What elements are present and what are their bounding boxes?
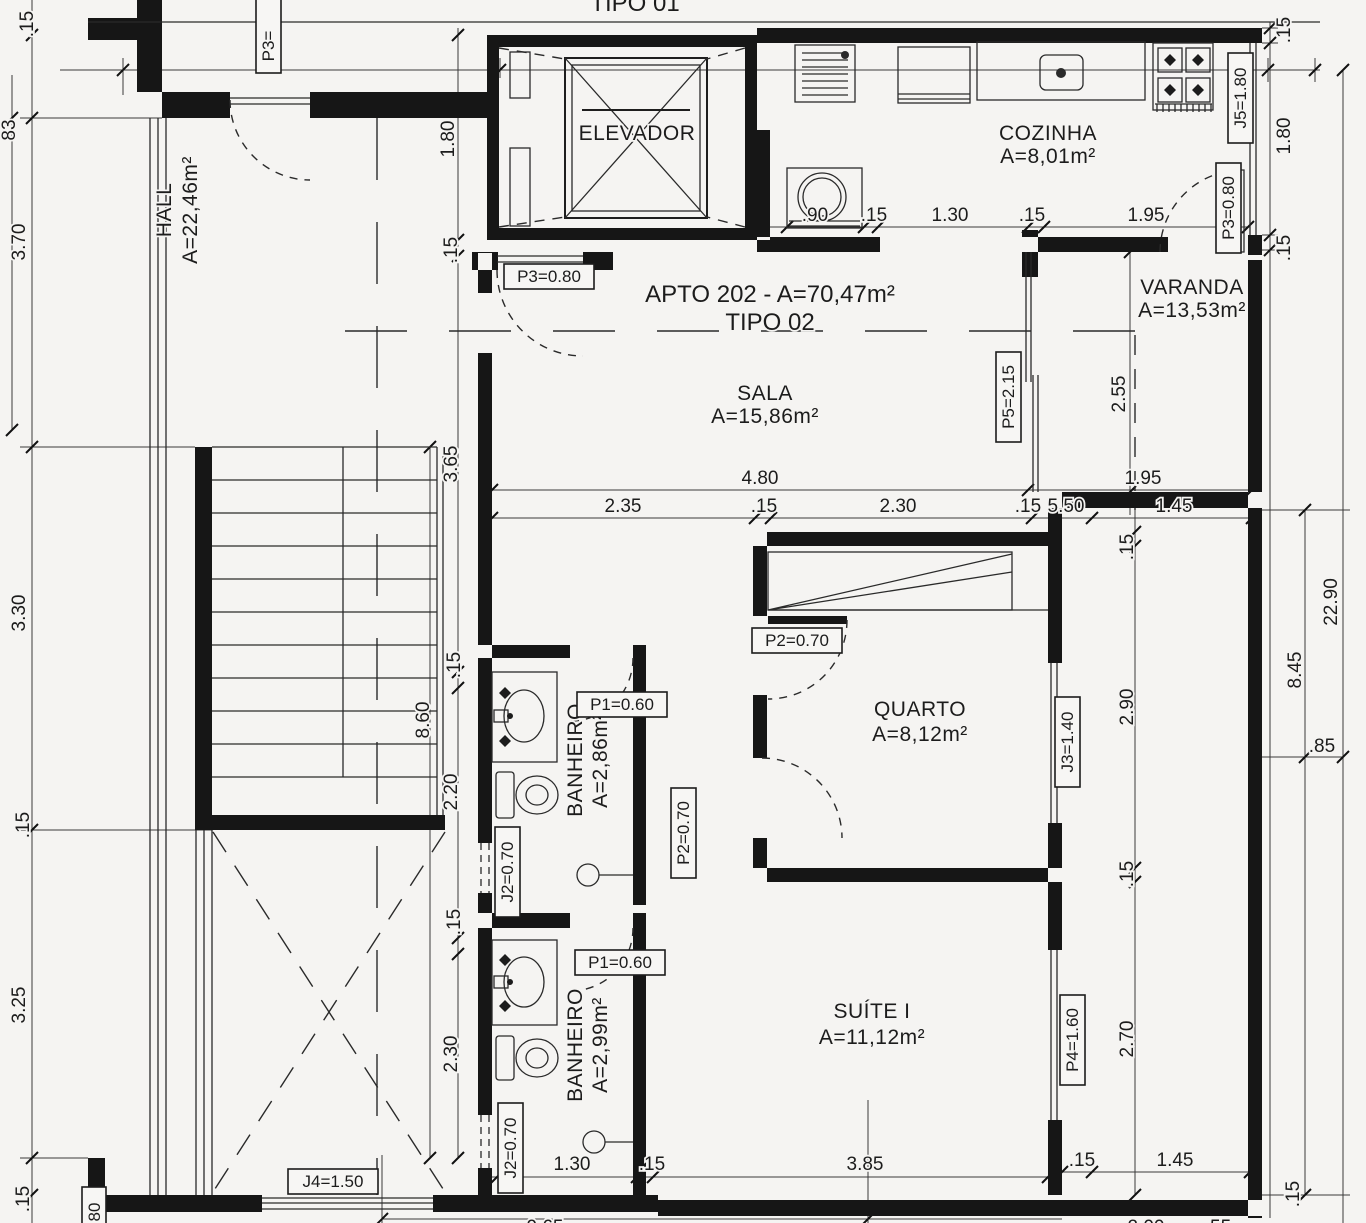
dim-sala-195: 1.95 bbox=[1125, 468, 1162, 489]
window-j4 bbox=[262, 1198, 433, 1209]
b2-toilet-bowl-inner bbox=[526, 1048, 548, 1068]
tag-j2-banheiro2: J2=0.70 bbox=[498, 1103, 523, 1193]
dim-bot-385: 3.85 bbox=[847, 1154, 884, 1175]
stove-burner-flames bbox=[1164, 54, 1204, 96]
floor-plan-canvas: ELEVADOR COZINHA A=8,01m² HALL A=22,46m²… bbox=[0, 0, 1366, 1223]
dim-q-290: 2.90 bbox=[1117, 689, 1138, 726]
dim-bot-55-cut: .55 bbox=[1205, 1217, 1231, 1223]
dim-bot-15b: .15 bbox=[1069, 1150, 1095, 1171]
dim-left-325: 3.25 bbox=[9, 987, 30, 1024]
tag-j3-quarto: J3=1.40 bbox=[1055, 697, 1080, 787]
dim-kit-195: 1.95 bbox=[1128, 205, 1165, 226]
dim-mid-15b: .15 bbox=[444, 909, 465, 935]
dim-elev-180: 1.80 bbox=[438, 121, 459, 158]
dim-left-83: 83 bbox=[0, 119, 20, 140]
svg-text:P2=0.70: P2=0.70 bbox=[674, 801, 693, 865]
dim-r-85: .85 bbox=[1309, 736, 1335, 757]
stair-treads bbox=[212, 447, 437, 777]
dim-bot-15a: .15 bbox=[639, 1154, 665, 1175]
quarto-wardrobe-diagonals bbox=[768, 554, 1048, 610]
tag-p2-quarto: P2=0.70 bbox=[752, 628, 842, 653]
dim-bot-145: 1.45 bbox=[1157, 1150, 1194, 1171]
tag-p5-varanda: P5=2.15 bbox=[996, 352, 1021, 442]
hall-glass-wall bbox=[150, 118, 166, 1195]
svg-text:P3=: P3= bbox=[259, 31, 278, 62]
stairs-group bbox=[212, 447, 443, 815]
laundry-tank-drain bbox=[841, 51, 849, 59]
dim-sala-15b: .15 bbox=[1015, 496, 1041, 517]
dim-sala-480: 4.80 bbox=[742, 468, 779, 489]
dim-bot-200-cut: 2.00 bbox=[1128, 1217, 1165, 1223]
dim-kit-130: 1.30 bbox=[932, 205, 969, 226]
dim-elev-15: .15 bbox=[441, 237, 462, 263]
dim-left-15-bot: .15 bbox=[13, 1186, 34, 1212]
room-label-elevador: ELEVADOR bbox=[579, 122, 696, 145]
room-label-quarto: QUARTO bbox=[874, 698, 966, 721]
dim-r-2290: 22.90 bbox=[1321, 578, 1342, 626]
kitchen-cabinet-detail bbox=[898, 94, 970, 99]
svg-text:P3=0.80: P3=0.80 bbox=[1219, 176, 1238, 240]
dim-q-270: 2.70 bbox=[1117, 1021, 1138, 1058]
elevator-door-pocket-bottom bbox=[510, 148, 530, 226]
tag-j2-banheiro1: J2=0.70 bbox=[495, 827, 520, 917]
window-j2-banheiro1 bbox=[481, 843, 489, 893]
room-area-suite: A=11,12m² bbox=[819, 1026, 925, 1049]
door-p4-glazing bbox=[1051, 950, 1057, 1120]
tag-p3-entry-cut: P3= bbox=[256, 0, 281, 73]
void-left-wall bbox=[196, 830, 212, 1195]
dim-mid-860: 8.60 bbox=[413, 702, 434, 739]
dim-sala-230: 2.30 bbox=[880, 496, 917, 517]
tag-p4-suite: P4=1.60 bbox=[1060, 995, 1085, 1085]
room-label-sala: SALA bbox=[737, 382, 793, 405]
room-area-sala: A=15,86m² bbox=[711, 405, 819, 428]
tag-j5-cozinha: J5=1.80 bbox=[1228, 53, 1253, 143]
dim-sala-235: 2.35 bbox=[605, 496, 642, 517]
dim-sala-15a: .15 bbox=[751, 496, 777, 517]
dim-left-15-mid: .15 bbox=[13, 812, 34, 838]
room-label-cozinha: COZINHA bbox=[999, 122, 1097, 145]
room-area-quarto: A=8,12m² bbox=[872, 723, 968, 746]
stair-rail bbox=[437, 447, 443, 815]
entry-door-sill bbox=[230, 98, 310, 104]
dim-sala-550: 5.50 bbox=[1048, 496, 1085, 517]
top-cut-text: TIPO 01 bbox=[590, 0, 679, 17]
door-arc-p2-corridor bbox=[762, 758, 842, 838]
tag-j4-bottom: J4=1.50 bbox=[288, 1169, 378, 1194]
kitchen-sink-drain bbox=[1056, 68, 1066, 78]
svg-text:80: 80 bbox=[85, 1203, 104, 1222]
b1-faucet-dot bbox=[507, 713, 513, 719]
room-area-cozinha: A=8,01m² bbox=[1000, 145, 1096, 168]
svg-text:J2=0.70: J2=0.70 bbox=[498, 842, 517, 903]
svg-text:P2=0.70: P2=0.70 bbox=[765, 631, 829, 650]
b2-toilet-bowl bbox=[516, 1039, 558, 1077]
room-area-varanda: A=13,53m² bbox=[1138, 299, 1246, 322]
sliding-door-p5 bbox=[1026, 252, 1038, 492]
dim-r-15a: .15 bbox=[1274, 17, 1295, 43]
b1-toilet-bowl-inner bbox=[526, 785, 548, 805]
svg-text:J2=0.70: J2=0.70 bbox=[501, 1118, 520, 1179]
room-label-hall: HALL bbox=[153, 183, 176, 238]
room-label-varanda: VARANDA bbox=[1140, 276, 1243, 299]
plan-title-line1: APTO 202 - A=70,47m² bbox=[645, 281, 895, 308]
dim-sala-145: 1.45 bbox=[1156, 496, 1193, 517]
dim-kit-15b: .15 bbox=[1019, 205, 1045, 226]
dim-left-330: 3.30 bbox=[9, 595, 30, 632]
dim-mid-220: 2.20 bbox=[441, 774, 462, 811]
dim-left-15-top: .15 bbox=[17, 11, 38, 37]
b1-toilet-bowl bbox=[516, 776, 558, 814]
tag-p2-corridor: P2=0.70 bbox=[671, 788, 696, 878]
dim-kit-90: .90 bbox=[802, 205, 828, 226]
b2-sink-counter bbox=[492, 940, 557, 1025]
dim-var-255: 2.55 bbox=[1109, 376, 1130, 413]
dim-r-845: 8.45 bbox=[1285, 652, 1306, 689]
tag-bottom-left-cut: 80 bbox=[82, 1187, 106, 1223]
tag-p1-banheiro2: P1=0.60 bbox=[575, 950, 665, 975]
dim-r-15b: .15 bbox=[1274, 235, 1295, 261]
b1-toilet-tank bbox=[496, 772, 514, 818]
room-label-banheiro1: BANHEIRO bbox=[564, 703, 587, 817]
room-label-banheiro2: BANHEIRO bbox=[564, 988, 587, 1102]
stove bbox=[1153, 43, 1213, 110]
floor-plan-page: ELEVADOR COZINHA A=8,01m² HALL A=22,46m²… bbox=[0, 0, 1366, 1223]
stove-handle bbox=[1155, 104, 1212, 112]
dim-r-15c: .15 bbox=[1283, 1181, 1304, 1207]
svg-text:P5=2.15: P5=2.15 bbox=[999, 365, 1018, 429]
dim-bot-965-cut: 9.65 bbox=[527, 1217, 564, 1223]
room-area-banheiro1: A=2,86m² bbox=[589, 712, 612, 808]
b1-shower-drain bbox=[577, 864, 599, 886]
svg-text:P4=1.60: P4=1.60 bbox=[1063, 1008, 1082, 1072]
b2-shower-drain bbox=[583, 1131, 605, 1153]
room-area-banheiro2: A=2,99m² bbox=[589, 997, 612, 1093]
dim-q-15a: .15 bbox=[1117, 534, 1138, 560]
dim-kit-15a: .15 bbox=[861, 205, 887, 226]
dim-r-180: 1.80 bbox=[1274, 118, 1295, 155]
dim-mid-230: 2.30 bbox=[441, 1036, 462, 1073]
dim-mid-365: 3.65 bbox=[441, 446, 462, 483]
door-arc-entry bbox=[230, 100, 310, 180]
tag-p3-hall: P3=0.80 bbox=[504, 264, 594, 289]
dim-left-370: 3.70 bbox=[9, 224, 30, 261]
laundry-tank-ribs bbox=[802, 53, 848, 95]
svg-text:J4=1.50: J4=1.50 bbox=[303, 1172, 364, 1191]
room-area-hall: A=22,46m² bbox=[179, 156, 202, 264]
b1-sink-counter bbox=[492, 672, 557, 762]
dim-bot-130: 1.30 bbox=[554, 1154, 591, 1175]
dim-q-15b: .15 bbox=[1117, 861, 1138, 887]
void-cross-lines bbox=[213, 832, 445, 1192]
plan-title-line2: TIPO 02 bbox=[725, 309, 814, 336]
room-label-suite: SUÍTE I bbox=[833, 1000, 910, 1023]
dim-mid-15a: .15 bbox=[444, 652, 465, 678]
svg-text:P1=0.60: P1=0.60 bbox=[588, 953, 652, 972]
svg-text:J3=1.40: J3=1.40 bbox=[1058, 712, 1077, 773]
tag-p3-varanda: P3=0.80 bbox=[1216, 163, 1241, 253]
b2-faucet bbox=[494, 976, 508, 988]
svg-text:P3=0.80: P3=0.80 bbox=[517, 267, 581, 286]
svg-text:P1=0.60: P1=0.60 bbox=[590, 695, 654, 714]
elevator-door-pocket-top bbox=[510, 52, 530, 98]
tag-p1-banheiro1: P1=0.60 bbox=[577, 692, 667, 717]
window-j2-banheiro2 bbox=[481, 1115, 489, 1168]
b2-faucet-dot bbox=[507, 979, 513, 985]
quarto-furniture-group bbox=[768, 552, 1048, 610]
reference-lines-layer bbox=[213, 118, 1140, 1195]
hall-door-sill bbox=[497, 256, 583, 262]
svg-text:J5=1.80: J5=1.80 bbox=[1231, 68, 1250, 129]
b1-faucet bbox=[494, 710, 508, 722]
b2-toilet-tank bbox=[496, 1036, 514, 1080]
